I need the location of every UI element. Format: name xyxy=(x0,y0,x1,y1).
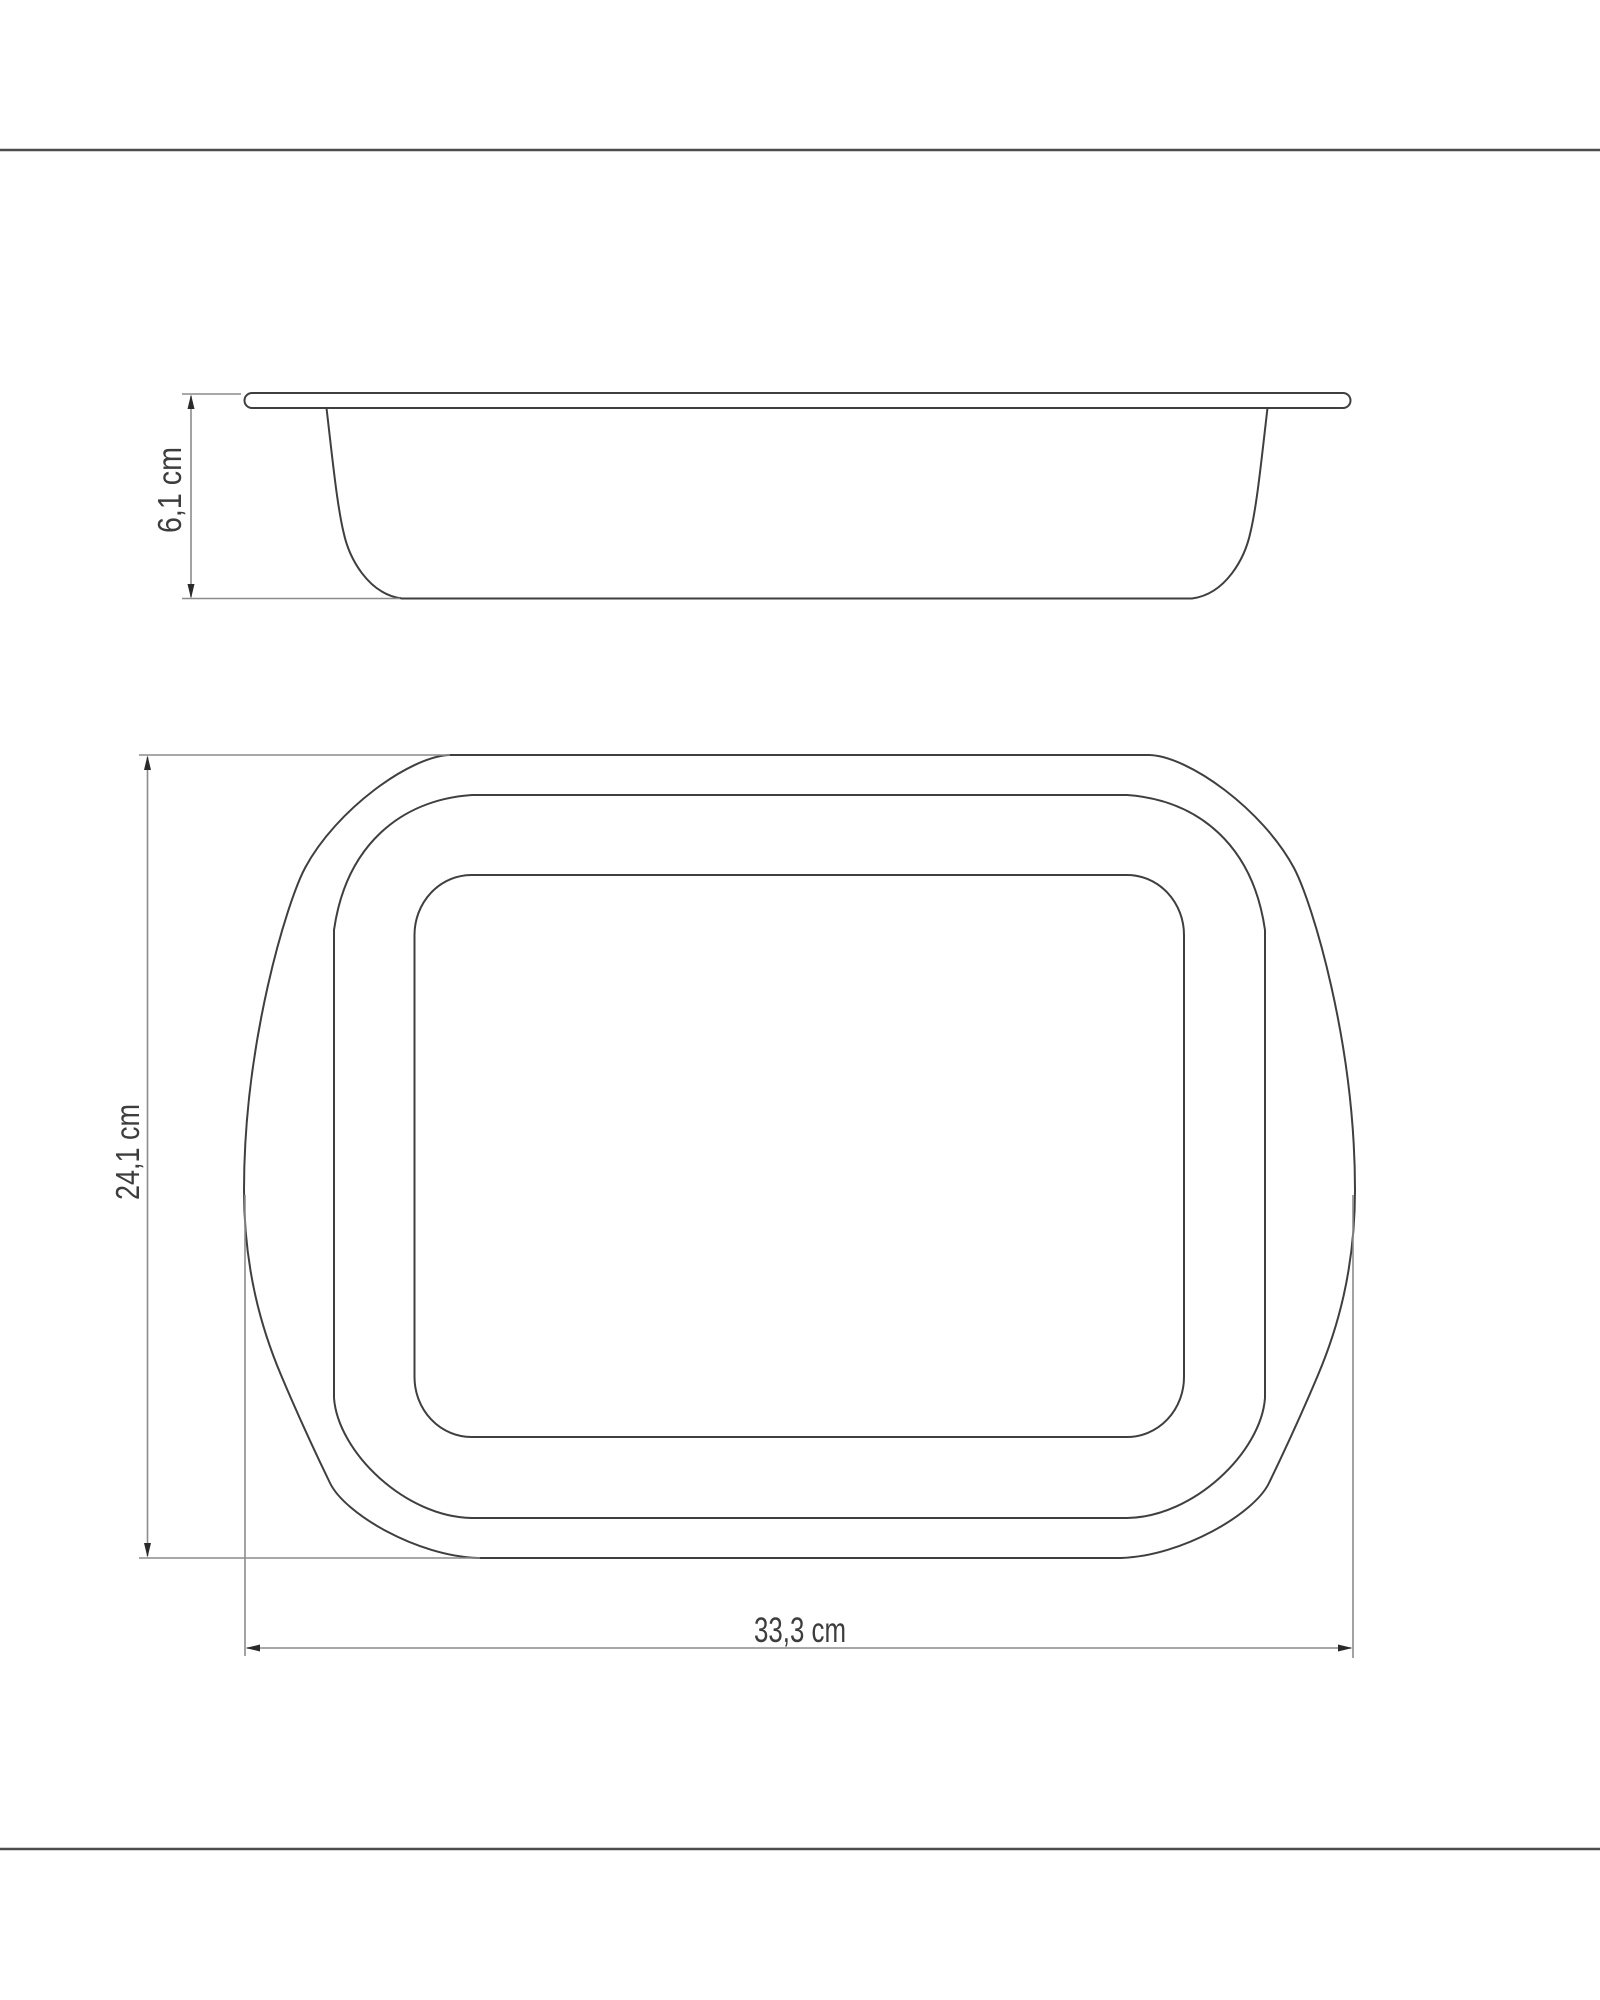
svg-text:6,1 cm: 6,1 cm xyxy=(151,447,188,533)
svg-text:33,3 cm: 33,3 cm xyxy=(754,1611,846,1650)
svg-text:24,1 cm: 24,1 cm xyxy=(109,1104,146,1200)
